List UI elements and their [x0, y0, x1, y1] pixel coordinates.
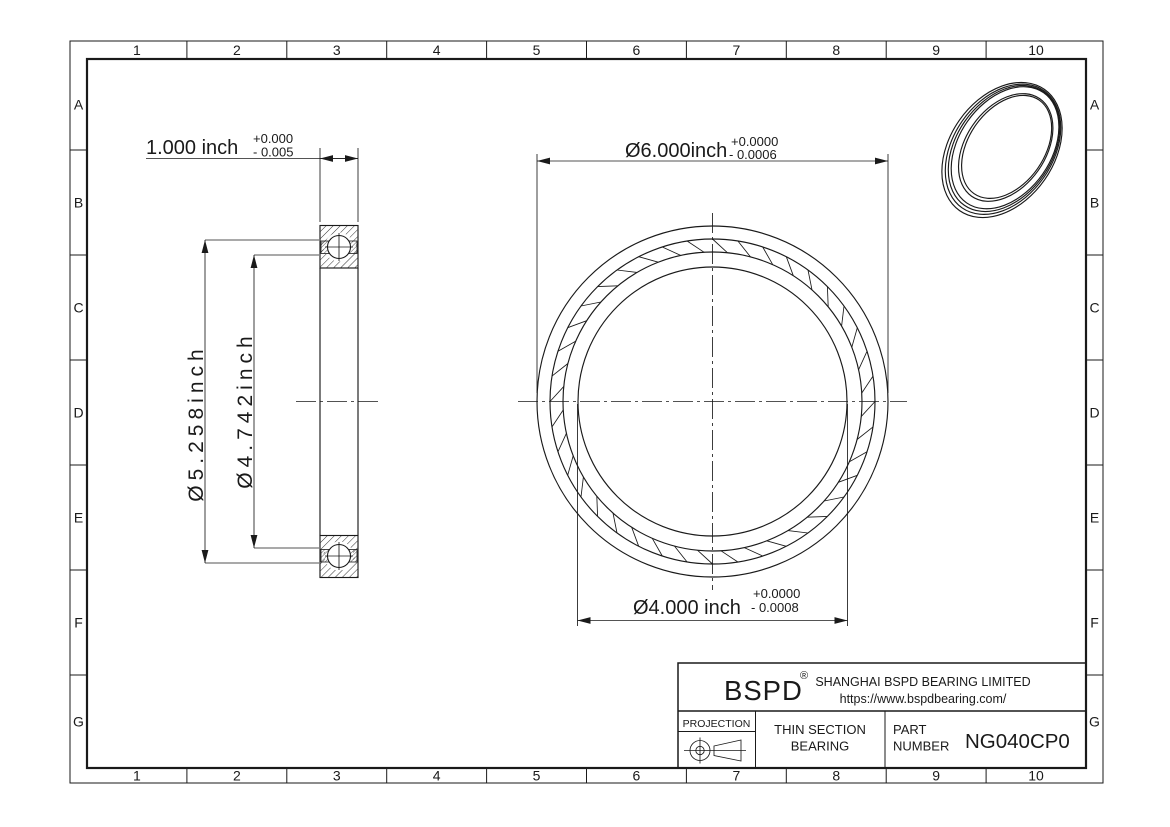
- grid-column-label-top: 2: [233, 42, 241, 58]
- grid-column-label-bottom: 4: [433, 768, 441, 784]
- registered-trademark-icon: ®: [800, 670, 808, 682]
- grid-row-label-left: G: [73, 714, 84, 730]
- grid-row-label-right: C: [1089, 300, 1099, 316]
- dim-bore-tol-minus: - 0.0008: [751, 600, 799, 615]
- grid-column-label-top: 7: [732, 42, 740, 58]
- grid-row-label-right: G: [1089, 714, 1100, 730]
- drawing-sheet: 1122334455667788991010AABBCCDDEEFFGG: [0, 0, 1170, 827]
- section-top-block: [320, 226, 358, 269]
- grid-column-label-bottom: 9: [932, 768, 940, 784]
- part-number-cell: PART NUMBER NG040CP0: [893, 722, 1070, 754]
- product-type-cell: THIN SECTION BEARING: [774, 722, 866, 754]
- part-number-value: NG040CP0: [965, 730, 1070, 753]
- section-bottom-block: [320, 536, 358, 578]
- grid-row-label-right: F: [1090, 615, 1099, 631]
- dim-bore-tol-plus: +0.0000: [753, 586, 800, 601]
- dim-outer-race-value: Ø5.258inch: [185, 344, 208, 501]
- grid-column-label-top: 9: [932, 42, 940, 58]
- grid-column-label-bottom: 8: [832, 768, 840, 784]
- grid-column-label-top: 10: [1028, 42, 1044, 58]
- grid-row-label-left: A: [74, 97, 84, 113]
- dim-width: 1.000 inch +0.000 - 0.005: [146, 131, 358, 222]
- dim-od-value: Ø6.000inch: [625, 140, 727, 162]
- grid-column-label-bottom: 10: [1028, 768, 1044, 784]
- grid-column-label-bottom: 5: [533, 768, 541, 784]
- grid-column-label-top: 5: [533, 42, 541, 58]
- grid-row-label-left: C: [73, 300, 83, 316]
- front-view: Ø6.000inch +0.0000 - 0.0006 Ø4.000 inch …: [518, 134, 907, 626]
- grid-column-label-bottom: 1: [133, 768, 141, 784]
- dim-bore-value: Ø4.000 inch: [633, 597, 741, 619]
- section-view: 1.000 inch +0.000 - 0.005 Ø5.258inch Ø4.…: [146, 131, 382, 578]
- website-link: https://www.bspdbearing.com/: [840, 692, 1007, 706]
- grid-column-label-top: 1: [133, 42, 141, 58]
- grid-column-label-top: 8: [832, 42, 840, 58]
- grid-column-label-bottom: 6: [633, 768, 641, 784]
- grid-column-label-bottom: 7: [732, 768, 740, 784]
- part-label-line2: NUMBER: [893, 739, 949, 754]
- part-label-line1: PART: [893, 722, 927, 737]
- engineering-drawing: 1122334455667788991010AABBCCDDEEFFGG: [0, 0, 1170, 827]
- isometric-view: [917, 60, 1087, 241]
- grid-row-label-right: D: [1089, 405, 1099, 421]
- grid-column-label-top: 4: [433, 42, 441, 58]
- grid-row-label-left: D: [73, 405, 83, 421]
- projection-label: PROJECTION: [683, 718, 751, 730]
- dim-inner-race-value: Ø4.742inch: [234, 331, 257, 488]
- grid-column-label-top: 3: [333, 42, 341, 58]
- grid-row-label-right: E: [1090, 510, 1099, 526]
- brand-logo: BSPD ®: [724, 670, 808, 706]
- grid-row-label-left: E: [74, 510, 83, 526]
- dim-width-value: 1.000 inch: [146, 137, 238, 159]
- product-type-line1: THIN SECTION: [774, 722, 866, 737]
- dim-od-tol-minus: - 0.0006: [729, 147, 777, 162]
- grid-row-label-left: B: [74, 195, 83, 211]
- grid-row-label-right: A: [1090, 97, 1100, 113]
- grid-row-label-left: F: [74, 615, 83, 631]
- product-type-line2: BEARING: [791, 739, 850, 754]
- grid-column-label-bottom: 3: [333, 768, 341, 784]
- company-name: SHANGHAI BSPD BEARING LIMITED: [815, 675, 1030, 689]
- dim-width-tol-minus: - 0.005: [253, 145, 293, 160]
- projection-cell: PROJECTION: [678, 718, 756, 764]
- grid-row-label-right: B: [1090, 195, 1099, 211]
- third-angle-projection-icon: [684, 738, 746, 764]
- title-block: BSPD ® SHANGHAI BSPD BEARING LIMITED htt…: [678, 663, 1086, 768]
- brand-name: BSPD: [724, 675, 803, 706]
- grid-column-label-bottom: 2: [233, 768, 241, 784]
- grid-column-label-top: 6: [633, 42, 641, 58]
